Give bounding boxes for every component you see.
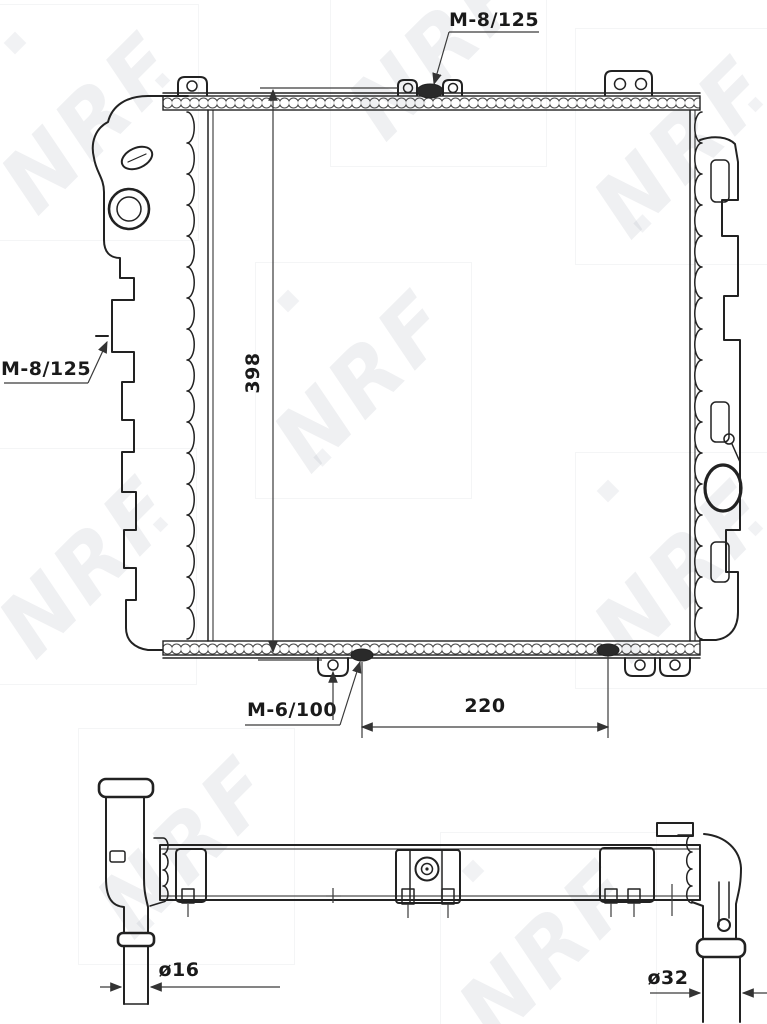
- bracket-hole: [670, 660, 680, 670]
- right-tank: [695, 112, 741, 640]
- inlet-port-inner: [117, 197, 141, 221]
- dimension-small-pipe: ø16: [100, 959, 280, 987]
- core-band: [160, 845, 700, 900]
- small-pipe-collar: [118, 933, 154, 946]
- dimension-height: 398: [242, 88, 398, 660]
- right-tank-joint-scallop: [695, 112, 702, 639]
- label-thread-top: M-8/125: [434, 9, 539, 84]
- elbow-inner: [692, 902, 703, 939]
- dimension-large-pipe: ø32: [648, 967, 767, 993]
- left-tank: [93, 96, 194, 650]
- bottom-tank-plate: [163, 641, 700, 655]
- outlet-port: [705, 465, 741, 511]
- elbow-outer: [704, 834, 741, 939]
- outlet-top-tab: [657, 823, 693, 836]
- side-brackets: [176, 848, 672, 918]
- dimension-value-small-pipe: ø16: [159, 959, 200, 981]
- right-tank-outline: [700, 137, 740, 640]
- label-thread-bottom: M-6/100: [245, 662, 360, 725]
- bracket-hole: [328, 660, 338, 670]
- side-core-band: [160, 845, 700, 900]
- leader-line: [340, 662, 360, 725]
- bracket-hole: [404, 84, 413, 93]
- side-bracket-left: [176, 849, 206, 902]
- elbow-inner: [144, 878, 148, 933]
- left-tank-joint-scallop: [187, 112, 194, 639]
- mounting-bolt-top: [417, 84, 443, 98]
- bracket-hole: [636, 79, 647, 90]
- thread-label-bottom: M-6/100: [247, 699, 337, 721]
- large-pipe-collar: [697, 939, 745, 957]
- side-view: ø16 ø32: [99, 779, 767, 1022]
- label-thread-left: M-8/125: [1, 342, 107, 383]
- bracket-hole: [449, 84, 458, 93]
- dimension-bottom-width: 220: [362, 656, 608, 738]
- inlet-port-outer: [109, 189, 149, 229]
- thread-label-left: M-8/125: [1, 358, 91, 380]
- drain-stub-tip: [718, 919, 730, 931]
- mounting-brackets-top: [178, 71, 652, 98]
- dimension-value-large-pipe: ø32: [648, 967, 689, 989]
- dimension-value-width: 220: [464, 695, 505, 717]
- side-bracket-right: [600, 848, 654, 902]
- bracket-hole: [635, 660, 645, 670]
- elbow-outer: [106, 878, 124, 933]
- technical-drawing-page: NRF NRF NRF NRF NRF NRF NRF NRF: [0, 0, 767, 1024]
- front-view: 398 M-8/125 M-8/125 M-6/100: [1, 9, 741, 738]
- drain-plug-stem: [732, 444, 740, 462]
- left-tank-outline: [93, 96, 188, 650]
- bracket-hole: [187, 81, 197, 91]
- bracket-tab-double: [605, 71, 652, 95]
- filler-cap: [99, 779, 153, 797]
- mounting-bolt-bottom-left: [351, 649, 373, 661]
- thread-label-top: M-8/125: [449, 9, 539, 31]
- overflow-hole: [110, 851, 125, 862]
- right-tank-rib: [711, 160, 729, 202]
- leader-line: [434, 32, 449, 84]
- filler-neck-slot: [128, 154, 146, 162]
- dimension-value-height: 398: [242, 352, 264, 393]
- right-tank-rib: [711, 402, 729, 442]
- mounting-bolt-bottom-right: [597, 644, 619, 656]
- bolt-center: [425, 867, 428, 870]
- radiator-technical-diagram: 398 M-8/125 M-8/125 M-6/100: [0, 0, 767, 1024]
- bracket-hole: [615, 79, 626, 90]
